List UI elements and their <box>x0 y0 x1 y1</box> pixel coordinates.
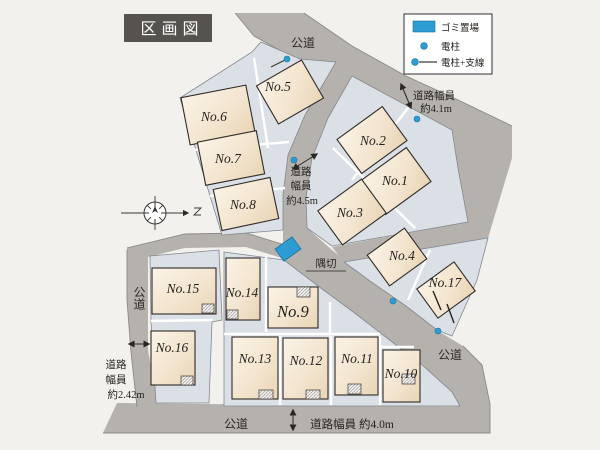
lot-label-no-8: No.8 <box>229 197 256 212</box>
porch <box>202 304 214 313</box>
road-bottom <box>103 403 490 433</box>
lot-label-no-1: No.1 <box>381 173 408 188</box>
lot-label-no-5: No.5 <box>264 79 291 94</box>
legend-label-trash: ゴミ置場 <box>441 22 480 34</box>
plot-map-svg: No.1 No.2 No.3 No.4 No.5 No.6 No.7 No.8 … <box>0 0 600 450</box>
trash-area-icon <box>413 21 435 32</box>
road-label-bottom: 公道 <box>224 417 248 431</box>
lot-label-no-12: No.12 <box>289 353 323 368</box>
plot-map-screenshot: No.1 No.2 No.3 No.4 No.5 No.6 No.7 No.8 … <box>0 0 600 450</box>
lot-label-no-16: No.16 <box>155 340 189 355</box>
width-4-5m-line1: 道路 <box>291 165 312 178</box>
width-4-5m-line2: 幅員 <box>291 179 312 192</box>
legend-label-pole-guy: 電柱+支線 <box>441 57 485 69</box>
porch <box>259 390 273 399</box>
porch <box>297 287 310 297</box>
lot-label-no-9: No.9 <box>276 302 309 321</box>
lot-label-no-7: No.7 <box>214 151 242 166</box>
lot-label-no-4: No.4 <box>388 248 415 263</box>
utility-pole-icon <box>421 43 428 50</box>
width-2-42m-line3: 約2.42m <box>107 388 144 401</box>
lot-label-no-10: No.10 <box>384 366 418 381</box>
utility-pole-icon <box>291 157 297 163</box>
porch <box>348 384 361 394</box>
legend-box: ゴミ置場 電柱 電柱+支線 <box>404 14 492 74</box>
utility-pole-icon <box>414 116 420 122</box>
lot-label-no-11: No.11 <box>340 351 373 366</box>
lot-label-no-14: No.14 <box>225 285 259 300</box>
width-4-5m-line3: 約4.5m <box>286 194 318 207</box>
lot-label-no-6: No.6 <box>200 109 227 124</box>
page-title: 区画図 <box>140 21 203 38</box>
lot-label-no-15: No.15 <box>166 281 200 296</box>
utility-pole-icon <box>284 56 290 62</box>
lot-label-no-13: No.13 <box>238 351 272 366</box>
road-label-diagonal: 公道 <box>438 348 462 362</box>
utility-pole-icon <box>390 298 396 304</box>
house-no-12 <box>283 338 328 399</box>
road-label-top: 公道 <box>291 36 315 50</box>
utility-pole-guy-icon <box>412 59 419 66</box>
porch <box>306 390 320 399</box>
road-label-left: 公道 <box>132 286 146 310</box>
porch <box>227 310 238 319</box>
width-2-42m-line1: 道路 <box>106 358 127 371</box>
title-block: 区画図 <box>124 14 212 42</box>
porch <box>181 376 193 385</box>
width-2-42m-line2: 幅員 <box>106 373 127 386</box>
lot-label-no-17: No.17 <box>428 275 463 290</box>
lot-label-no-2: No.2 <box>359 133 386 148</box>
lot-label-no-3: No.3 <box>336 205 363 220</box>
width-4-1m-line1: 道路幅員 <box>413 89 455 102</box>
legend-label-pole: 電柱 <box>441 41 461 53</box>
utility-pole-icon <box>435 328 441 334</box>
corner-cut-label: 隅切 <box>316 258 337 270</box>
width-4-1m-line2: 約4.1m <box>420 102 452 115</box>
lot-divider <box>151 320 213 321</box>
width-4-0m-label: 道路幅員 約4.0m <box>310 417 394 431</box>
